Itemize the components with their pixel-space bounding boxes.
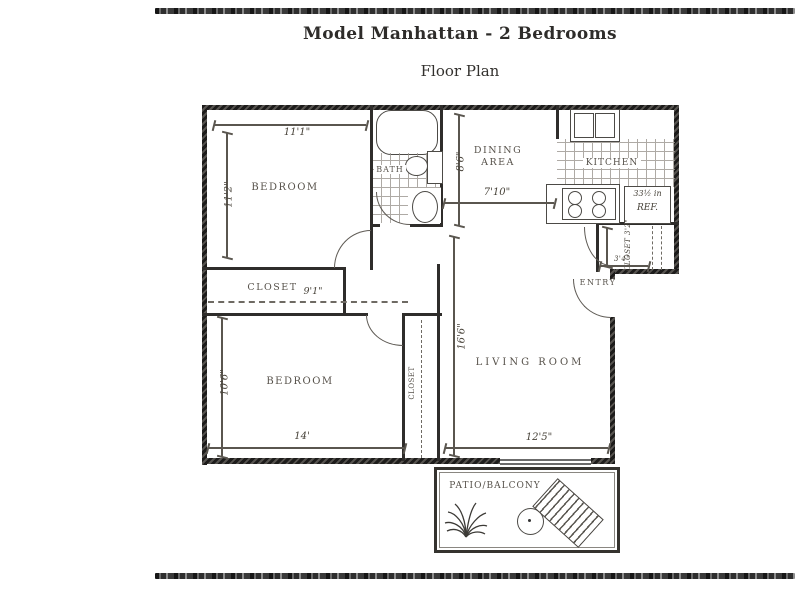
patio-label: PATIO/BALCONY xyxy=(448,481,542,491)
wall-bath-bottom-a xyxy=(370,224,380,227)
entry-label: ENTRY xyxy=(576,278,620,287)
dim-line-living-depth xyxy=(453,237,455,455)
bedroom-closet-label: CLOSET xyxy=(408,361,416,405)
bedroom2-door-arc xyxy=(366,315,403,346)
hall-closet-rod xyxy=(208,301,408,303)
bath-sink xyxy=(405,156,428,176)
bottom-rule-bar xyxy=(155,573,795,579)
dim-line-bedroom1-width xyxy=(214,124,366,126)
top-rule-bar xyxy=(155,8,795,14)
wall-bath-bottom-b xyxy=(410,224,443,227)
bath-label: BATH xyxy=(374,165,406,174)
bath-vanity xyxy=(427,151,443,184)
stove-burner-4 xyxy=(592,204,606,218)
plant-icon xyxy=(443,497,489,543)
floor-plan-page: Model Manhattan - 2 Bedrooms Floor Plan … xyxy=(0,0,800,600)
bathtub xyxy=(376,110,438,155)
dim-line-bedroom2-width xyxy=(208,447,404,449)
dim-bedroom1-width: 11'1" xyxy=(262,127,332,138)
wall-closet-divider xyxy=(343,267,346,316)
patio-table-center xyxy=(528,519,531,522)
corner-closet-hang-line-2 xyxy=(661,226,662,270)
hall-closet-width: 9'1" xyxy=(295,286,331,297)
dim-living-depth: 16'6" xyxy=(457,309,468,365)
wall-left xyxy=(202,105,207,465)
wall-bedroom1-bottom xyxy=(202,267,343,270)
bedroom1-door-arc xyxy=(334,230,371,268)
wall-bottom-left xyxy=(202,458,500,464)
patio-slider-track xyxy=(500,459,591,461)
wall-bedroom2-top-b xyxy=(402,313,442,316)
kitchen-label: KITCHEN xyxy=(583,158,641,168)
stove-burner-2 xyxy=(592,191,606,205)
stove-burner-3 xyxy=(568,204,582,218)
page-subtitle: Floor Plan xyxy=(160,62,760,80)
bedroom-closet-hang-line xyxy=(421,320,422,458)
dim-line-living-width xyxy=(445,447,608,449)
stove-burner-1 xyxy=(568,191,582,205)
dim-bedroom1-depth: 11'2" xyxy=(224,167,235,223)
dim-bedroom2-depth: 10'6" xyxy=(220,355,231,411)
toilet xyxy=(412,191,438,223)
wall-living-left xyxy=(437,264,440,461)
refrigerator-size: 33½ in xyxy=(625,189,670,198)
wall-kitchen-left-stub xyxy=(556,105,559,139)
dining-label-line2: AREA xyxy=(466,157,530,168)
dim-living-width: 12'5" xyxy=(509,432,569,443)
dim-line-dining-width xyxy=(444,202,554,204)
dim-dining-depth: 8'6" xyxy=(456,134,467,190)
refrigerator-label: REF. xyxy=(625,203,670,213)
bedroom2-label: BEDROOM xyxy=(250,376,350,387)
bedroom1-label: BEDROOM xyxy=(235,182,335,193)
dining-label-line1: DINING xyxy=(466,145,530,156)
wall-bedroom2-top-a xyxy=(202,313,368,316)
dim-bedroom2-width: 14' xyxy=(272,431,332,442)
kitchen-sink-basin-left xyxy=(574,113,594,138)
dim-dining-width: 7'10" xyxy=(467,187,527,198)
kitchen-sink-basin-right xyxy=(595,113,615,138)
wall-right-lower-b xyxy=(610,317,615,464)
wall-right-upper xyxy=(674,105,679,274)
corner-closet-hang-line-1 xyxy=(652,226,653,270)
patio-slider-leaf xyxy=(500,463,591,465)
kitchen-door-arc xyxy=(584,227,611,266)
living-room-label: LIVING ROOM xyxy=(468,357,592,368)
page-title: Model Manhattan - 2 Bedrooms xyxy=(160,24,760,44)
